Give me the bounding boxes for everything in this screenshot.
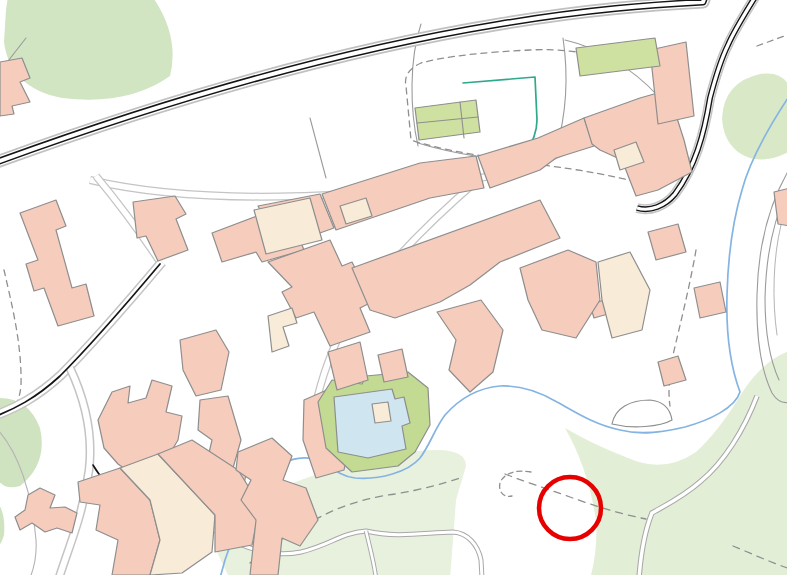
building xyxy=(15,488,77,533)
green-building-northeast xyxy=(576,38,660,76)
vegetation-top-left xyxy=(4,0,173,100)
footpath-dashed-left-edge xyxy=(4,270,21,416)
building-secondary xyxy=(598,252,650,338)
parcel-line-field-divider xyxy=(310,118,326,178)
enclosure-by-stream xyxy=(612,400,672,427)
vegetation-left-bottom-sliver xyxy=(0,500,4,546)
building xyxy=(133,196,188,261)
map-viewport xyxy=(0,0,787,575)
pool-house xyxy=(372,402,391,423)
swimming-pool xyxy=(334,389,410,458)
building xyxy=(648,224,686,260)
road-village-south-branch-casing xyxy=(59,368,90,575)
highlight-circle xyxy=(539,477,601,539)
building xyxy=(694,282,726,318)
map-canvas[interactable] xyxy=(0,0,787,575)
vegetation-bottom-right xyxy=(565,350,787,575)
building xyxy=(378,349,408,382)
building xyxy=(437,300,503,392)
building-secondary xyxy=(268,308,297,352)
building xyxy=(520,250,600,338)
footpath-end-squiggle xyxy=(500,471,531,496)
building xyxy=(658,356,686,386)
building xyxy=(0,58,30,116)
footpath-dashed-top-right xyxy=(757,34,787,46)
building xyxy=(20,200,94,326)
building xyxy=(180,330,229,396)
trail-right-hairpin xyxy=(774,225,781,335)
